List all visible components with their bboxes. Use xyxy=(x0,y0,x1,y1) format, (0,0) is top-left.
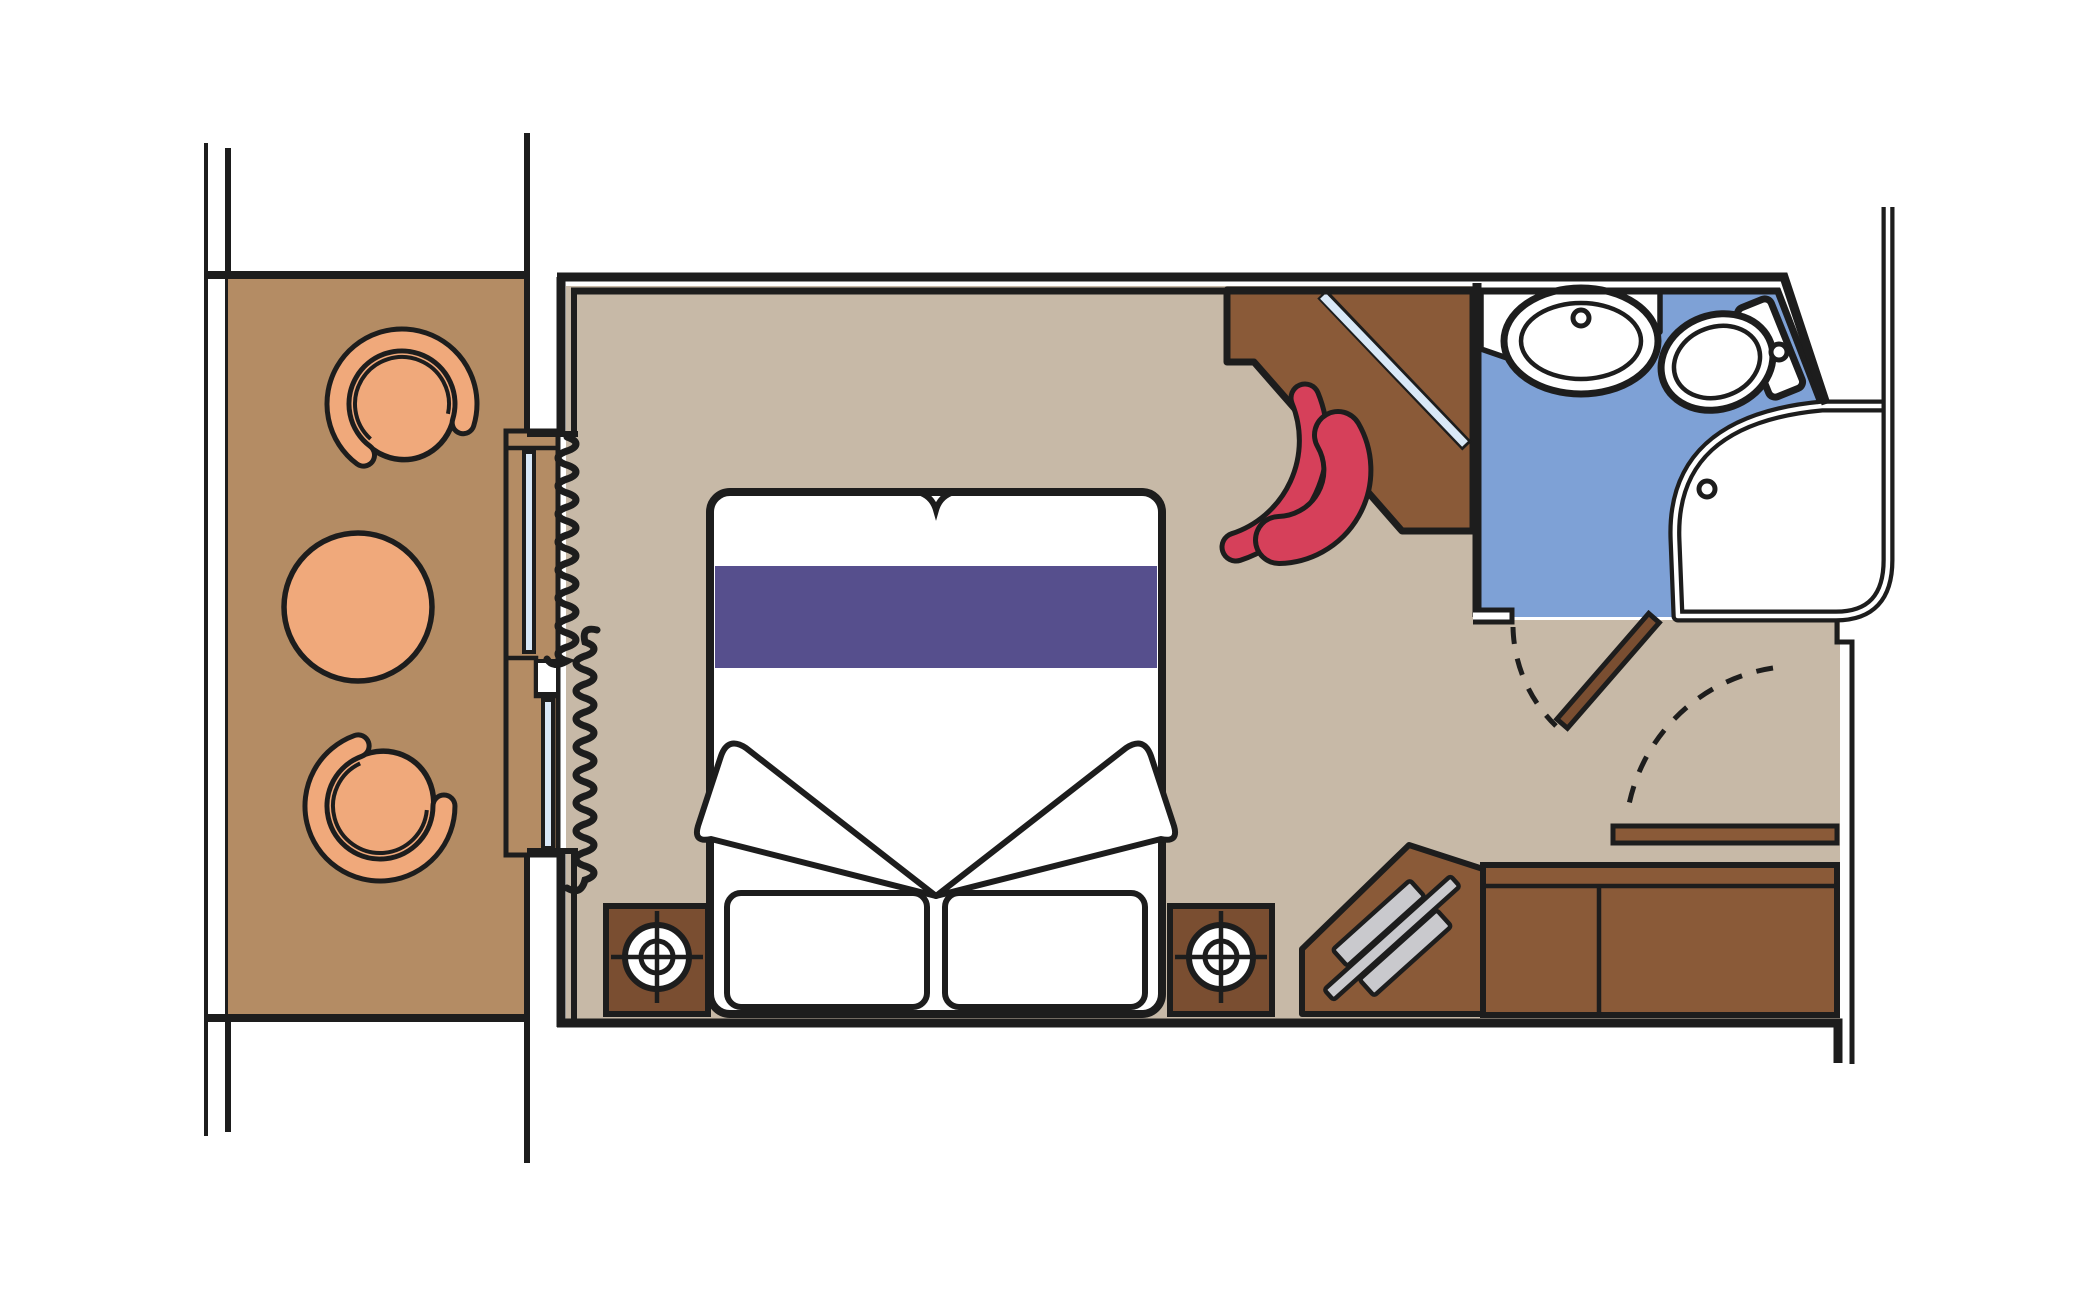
bathroom-door-jamb xyxy=(1473,610,1512,622)
floor-plan-canvas xyxy=(0,0,2100,1299)
flush-button xyxy=(1771,344,1787,360)
wardrobe xyxy=(1483,865,1837,1015)
sink xyxy=(1504,288,1658,394)
shower-drain xyxy=(1699,481,1715,497)
sliding-door-glass-lower xyxy=(543,700,553,848)
bed-runner xyxy=(715,566,1157,668)
pillow-left xyxy=(727,893,927,1007)
nightstand-left xyxy=(606,906,708,1014)
faucet-dot xyxy=(1573,310,1589,326)
pillow-right xyxy=(945,893,1145,1007)
balcony-table xyxy=(284,533,432,681)
sliding-door-unit xyxy=(506,431,558,855)
sliding-door-glass-upper xyxy=(524,452,534,652)
nightstand-right xyxy=(1170,906,1272,1014)
entry-door-panel xyxy=(1613,826,1837,843)
double-bed xyxy=(697,492,1175,1014)
